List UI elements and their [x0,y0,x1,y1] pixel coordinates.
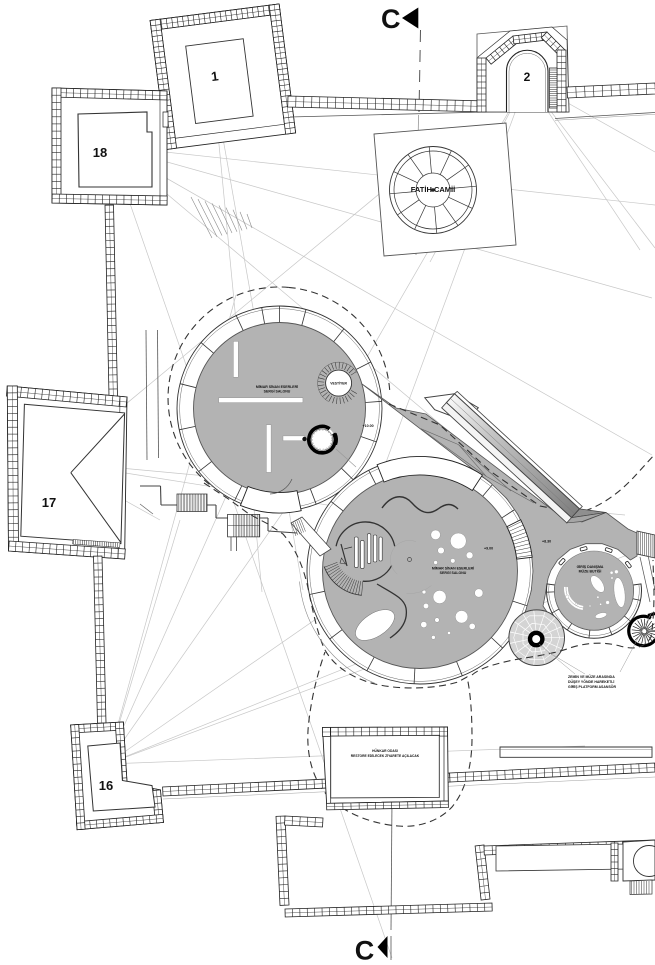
svg-text:MİMAR SİNAN ESERLERİ: MİMAR SİNAN ESERLERİ [432,567,474,571]
svg-text:RESTORE EDİLECEK ZİYARETE AÇIL: RESTORE EDİLECEK ZİYARETE AÇILACAK [351,754,420,758]
svg-text:+9.00: +9.00 [484,547,493,551]
svg-text:SERGİ SALONU: SERGİ SALONU [264,390,291,394]
svg-text:GİRİŞ PLATFORM ASANSÖR: GİRİŞ PLATFORM ASANSÖR [568,685,617,689]
svg-text:C: C [381,4,401,34]
svg-text:18: 18 [93,145,107,160]
svg-text:ZEMİN VE MÜZE ARASINDA: ZEMİN VE MÜZE ARASINDA [568,675,615,679]
svg-text:MÜZE BUTİĞİ: MÜZE BUTİĞİ [579,569,602,574]
svg-text:+8.30: +8.30 [542,540,551,544]
svg-text:+10.00: +10.00 [363,424,374,428]
svg-text:MİMAR SİNAN ESERLERİ: MİMAR SİNAN ESERLERİ [256,385,298,389]
svg-text:C: C [355,936,375,961]
svg-text:SERGİ SALONU: SERGİ SALONU [440,571,467,575]
svg-text:FATİH CAMİİ: FATİH CAMİİ [411,185,455,194]
svg-text:2: 2 [524,70,531,84]
svg-text:17: 17 [42,495,56,510]
svg-text:GİRİŞ DANIŞMA: GİRİŞ DANIŞMA [577,565,604,569]
svg-text:HÜNKAR ODASI: HÜNKAR ODASI [372,749,398,753]
svg-text:VESTİYER: VESTİYER [330,382,347,386]
svg-text:DÜŞEY YÖNDE HAREKETLİ: DÜŞEY YÖNDE HAREKETLİ [568,680,614,684]
svg-text:16: 16 [99,778,113,793]
